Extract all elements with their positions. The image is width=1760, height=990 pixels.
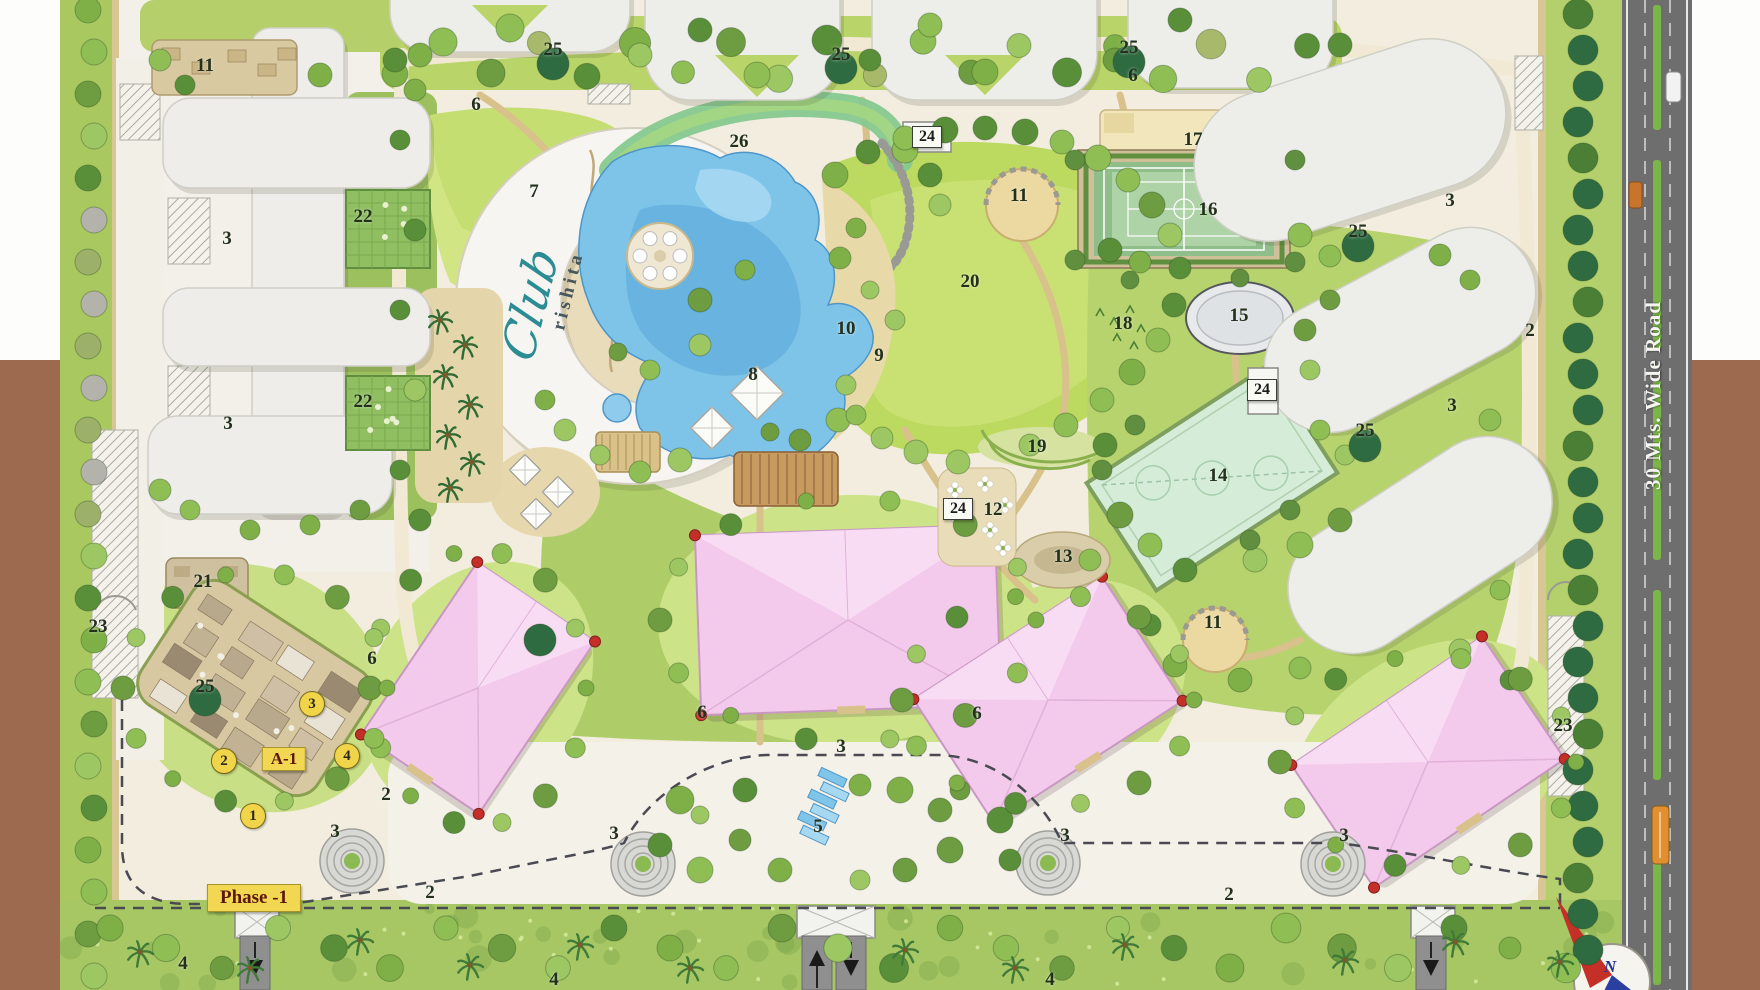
map-label: 3 <box>222 228 232 250</box>
map-label: 18 <box>1114 313 1133 335</box>
map-label: 6 <box>367 648 377 670</box>
map-label: 25 <box>544 39 563 61</box>
phase-tag: Phase -1 <box>207 884 301 912</box>
map-label: 3 <box>1445 190 1455 212</box>
label-layer: Club rishita 30 Mts. Wide Road Phase -1 … <box>0 0 1760 990</box>
map-label: 25 <box>1120 37 1139 59</box>
map-label: 3 <box>1339 825 1349 847</box>
map-label: 6 <box>972 703 982 725</box>
unit-badge: 3 <box>299 691 325 717</box>
map-label: 21 <box>194 571 213 593</box>
club-wordmark: Club rishita <box>428 192 658 422</box>
map-label: 14 <box>1209 465 1228 487</box>
site-plan-canvas: N Club rishita 30 Mts. Wide Road Phase -… <box>0 0 1760 990</box>
map-label: 6 <box>1128 65 1138 87</box>
map-label: 3 <box>836 736 846 758</box>
map-label: 25 <box>1356 420 1375 442</box>
map-label: 3 <box>1447 395 1457 417</box>
map-label: 22 <box>354 206 373 228</box>
map-label: 11 <box>1010 185 1028 207</box>
map-label: 26 <box>730 131 749 153</box>
map-label: 13 <box>1054 546 1073 568</box>
sign-label: 24 <box>912 126 942 148</box>
map-label: 6 <box>697 702 707 724</box>
map-label: 7 <box>529 181 539 203</box>
map-label: 3 <box>330 821 340 843</box>
map-label: 4 <box>549 969 559 990</box>
map-label: 17 <box>1184 129 1203 151</box>
map-label: 22 <box>354 391 373 413</box>
unit-badge: 1 <box>240 803 266 829</box>
map-label: 23 <box>1554 715 1573 737</box>
map-label: 23 <box>89 616 108 638</box>
map-label: 19 <box>1028 436 1047 458</box>
block-tag: A-1 <box>262 747 306 771</box>
map-label: 2 <box>381 784 391 806</box>
map-label: 11 <box>196 55 214 77</box>
map-label: 4 <box>178 953 188 975</box>
map-label: 2 <box>1224 884 1234 906</box>
map-label: 2 <box>425 882 435 904</box>
map-label: 3 <box>223 413 233 435</box>
map-label: 25 <box>196 676 215 698</box>
map-label: 25 <box>832 44 851 66</box>
map-label: 9 <box>874 345 884 367</box>
unit-badge: 2 <box>211 748 237 774</box>
sign-label: 24 <box>1247 379 1277 401</box>
unit-badge: 4 <box>334 743 360 769</box>
map-label: 12 <box>984 499 1003 521</box>
map-label: 2 <box>1525 320 1535 342</box>
map-label: 4 <box>1045 969 1055 990</box>
map-label: 5 <box>813 816 823 838</box>
map-label: 6 <box>471 94 481 116</box>
map-label: 3 <box>1060 825 1070 847</box>
sign-label: 24 <box>943 498 973 520</box>
map-label: 20 <box>961 271 980 293</box>
map-label: 8 <box>748 364 758 386</box>
map-label: 25 <box>1349 221 1368 243</box>
map-label: 16 <box>1199 199 1218 221</box>
map-label: 15 <box>1230 305 1249 327</box>
club-name-script: Club <box>499 242 563 367</box>
map-label: 3 <box>609 823 619 845</box>
road-name-label: 30 Mts. Wide Road <box>1641 250 1666 490</box>
map-label: 11 <box>1204 612 1222 634</box>
map-label: 10 <box>837 318 856 340</box>
